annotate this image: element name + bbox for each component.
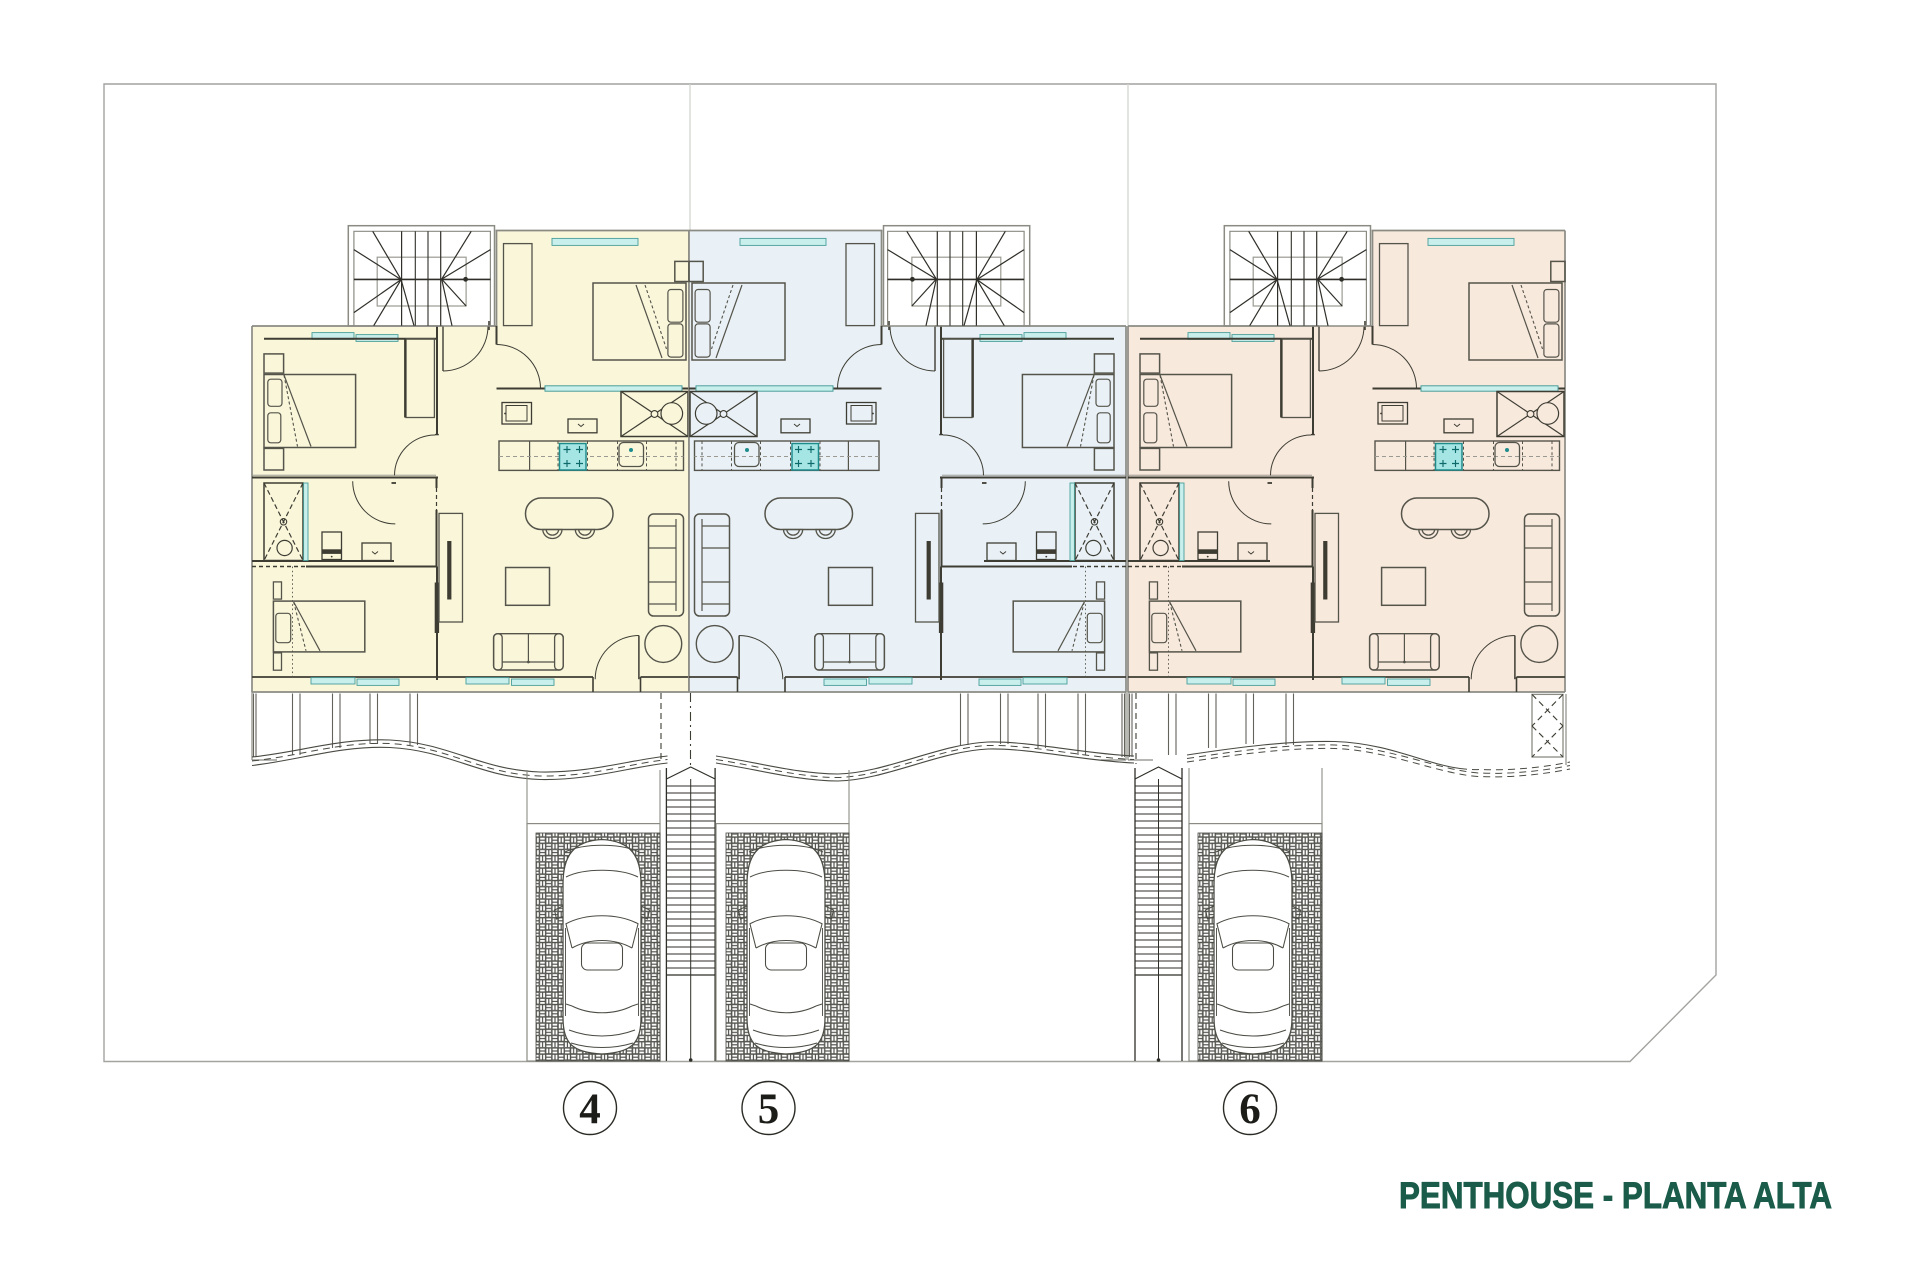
svg-text:PENTHOUSE - PLANTA ALTA: PENTHOUSE - PLANTA ALTA (1399, 1175, 1832, 1216)
svg-text:5: 5 (758, 1086, 780, 1133)
svg-text:6: 6 (1239, 1086, 1261, 1133)
svg-text:4: 4 (579, 1086, 601, 1133)
